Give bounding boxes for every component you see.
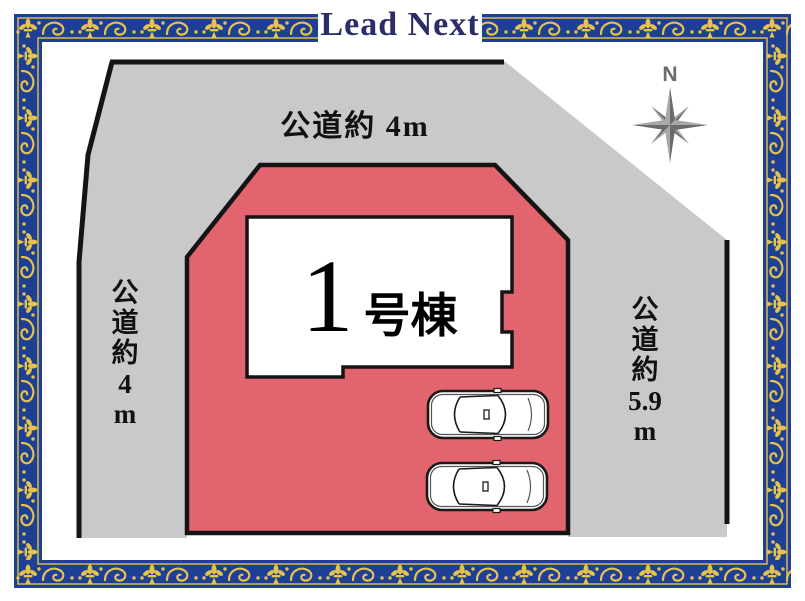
building-number: 1: [302, 245, 354, 349]
building-suffix: 号棟: [364, 277, 458, 346]
compass-rose-icon: N: [632, 63, 708, 163]
logo-text: Lead Next: [320, 6, 479, 44]
car-icon: [427, 461, 547, 513]
logo: Lead Next: [318, 0, 482, 49]
right-road-label: 公 道 約 5.9 m: [622, 295, 668, 446]
left-road-label: 公 道 約 4 m: [104, 278, 146, 429]
building-label: 1 号棟: [247, 222, 512, 372]
compass-north-label: N: [662, 63, 677, 86]
top-road-label: 公道約 4m: [255, 101, 455, 145]
compass-cardinal-points: [632, 87, 708, 163]
car-icon: [428, 389, 548, 441]
